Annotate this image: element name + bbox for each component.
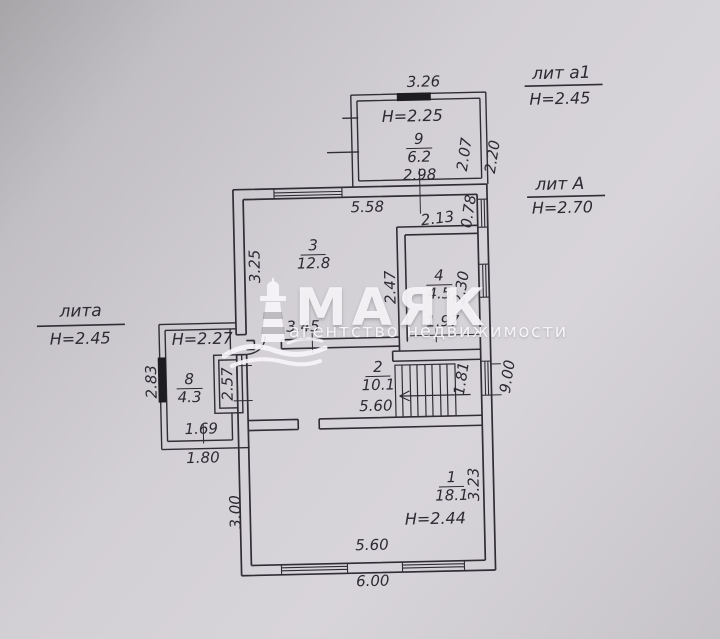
dim-r8-left: 2.83 <box>144 365 161 399</box>
room-8-area: 4.3 <box>177 389 201 406</box>
room-4-label: 4 4.5 <box>426 268 452 302</box>
room-8-number: 8 <box>176 372 202 389</box>
dim-r2-width: 5.60 <box>359 398 393 415</box>
caption-lit-a1: лит а1 <box>532 65 591 84</box>
room-9-label: 9 6.2 <box>406 132 432 166</box>
window-filled-room9 <box>397 92 431 101</box>
dim-r8-bottom-outer: 1.80 <box>186 450 220 467</box>
dim-r4-width: 1.97 <box>426 314 460 331</box>
room-9-area: 6.2 <box>407 148 431 165</box>
room-1-number: 1 <box>439 470 465 487</box>
floor-plan: лит а1 Н=2.45 лит А Н=2.70 лита Н=2.45 3… <box>0 0 720 639</box>
dim-r8-bottom-inner: 1.69 <box>184 421 218 438</box>
dim-r1-left: 3.00 <box>228 495 245 529</box>
dim-r8-right: 2.57 <box>220 367 237 401</box>
room-2-label: 2 10.1 <box>361 359 395 393</box>
room-4-number: 4 <box>426 268 452 285</box>
room-1-height: Н=2.44 <box>405 510 466 528</box>
room-4-area: 4.5 <box>427 285 451 302</box>
room-1-area: 18.1 <box>435 487 469 505</box>
room-3-label: 3 12.8 <box>296 238 330 272</box>
floorplan-photo: лит а1 Н=2.45 лит А Н=2.70 лита Н=2.45 3… <box>0 0 720 639</box>
room-2-number: 2 <box>365 360 391 377</box>
room-8-height: Н=2.27 <box>172 330 233 348</box>
dim-r3-bottom: 3.45 <box>286 319 320 336</box>
dim-bottom-total: 6.00 <box>356 574 390 591</box>
caption-lit-a1-height: Н=2.45 <box>529 90 590 108</box>
caption-lit-A: лит А <box>535 176 584 195</box>
caption-underlines <box>32 84 608 326</box>
dim-r1-width: 5.60 <box>355 538 389 555</box>
dim-r3-left: 3.25 <box>247 249 264 283</box>
dim-r1-right: 3.23 <box>466 468 483 502</box>
room-9-number: 9 <box>406 132 432 149</box>
caption-lit-A-height: Н=2.70 <box>532 199 593 217</box>
room-8-label: 8 4.3 <box>176 372 202 406</box>
dim-r9-width-inner: 2.98 <box>403 167 437 184</box>
dim-r3-top: 5.58 <box>350 200 384 217</box>
room-3-area: 12.8 <box>297 255 331 273</box>
dim-r3-right: 2.47 <box>383 270 400 304</box>
dim-top-width-outer: 3.26 <box>407 74 441 91</box>
caption-lit-a-height: Н=2.45 <box>50 330 111 348</box>
caption-lit-a: лита <box>59 303 102 322</box>
room-3-number: 3 <box>300 238 326 255</box>
room-2-area: 10.1 <box>361 376 395 394</box>
room-9-height: Н=2.25 <box>382 108 443 126</box>
